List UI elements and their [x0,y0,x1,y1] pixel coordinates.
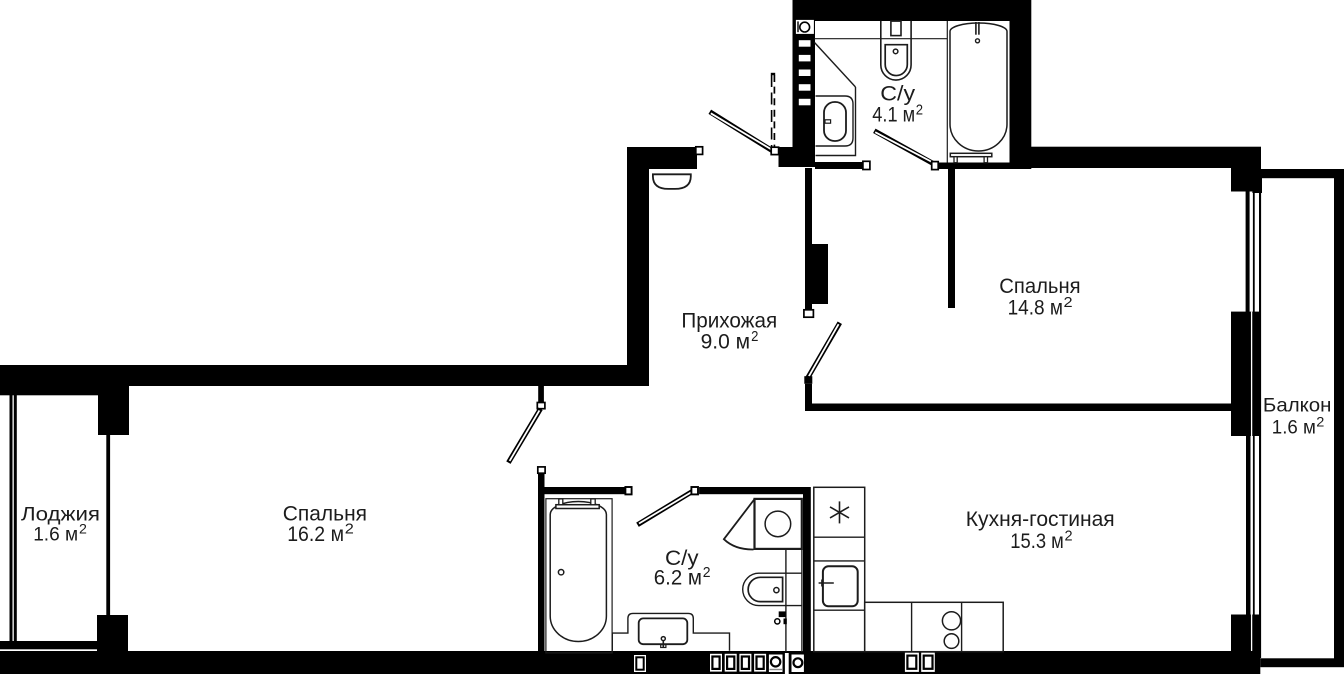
svg-text:2: 2 [1064,295,1073,311]
svg-text:2: 2 [703,565,711,581]
svg-text:1.6 м: 1.6 м [1272,417,1316,439]
svg-text:2: 2 [1065,529,1073,545]
svg-text:6.2 м: 6.2 м [654,566,702,590]
svg-text:2: 2 [751,329,758,345]
svg-text:2: 2 [1316,415,1324,430]
svg-text:9.0 м: 9.0 м [701,329,751,353]
svg-text:Балкон: Балкон [1263,394,1332,416]
svg-text:2: 2 [345,522,354,538]
svg-text:15.3 м: 15.3 м [1010,529,1064,553]
svg-text:Лоджия: Лоджия [21,504,100,526]
svg-text:2: 2 [916,102,923,118]
svg-text:14.8 м: 14.8 м [1008,295,1063,319]
svg-text:Кухня-гостиная: Кухня-гостиная [966,507,1115,531]
svg-text:16.2 м: 16.2 м [287,522,344,546]
svg-text:4.1 м: 4.1 м [872,103,915,127]
svg-text:1.6 м: 1.6 м [33,523,78,545]
svg-text:2: 2 [79,522,87,537]
